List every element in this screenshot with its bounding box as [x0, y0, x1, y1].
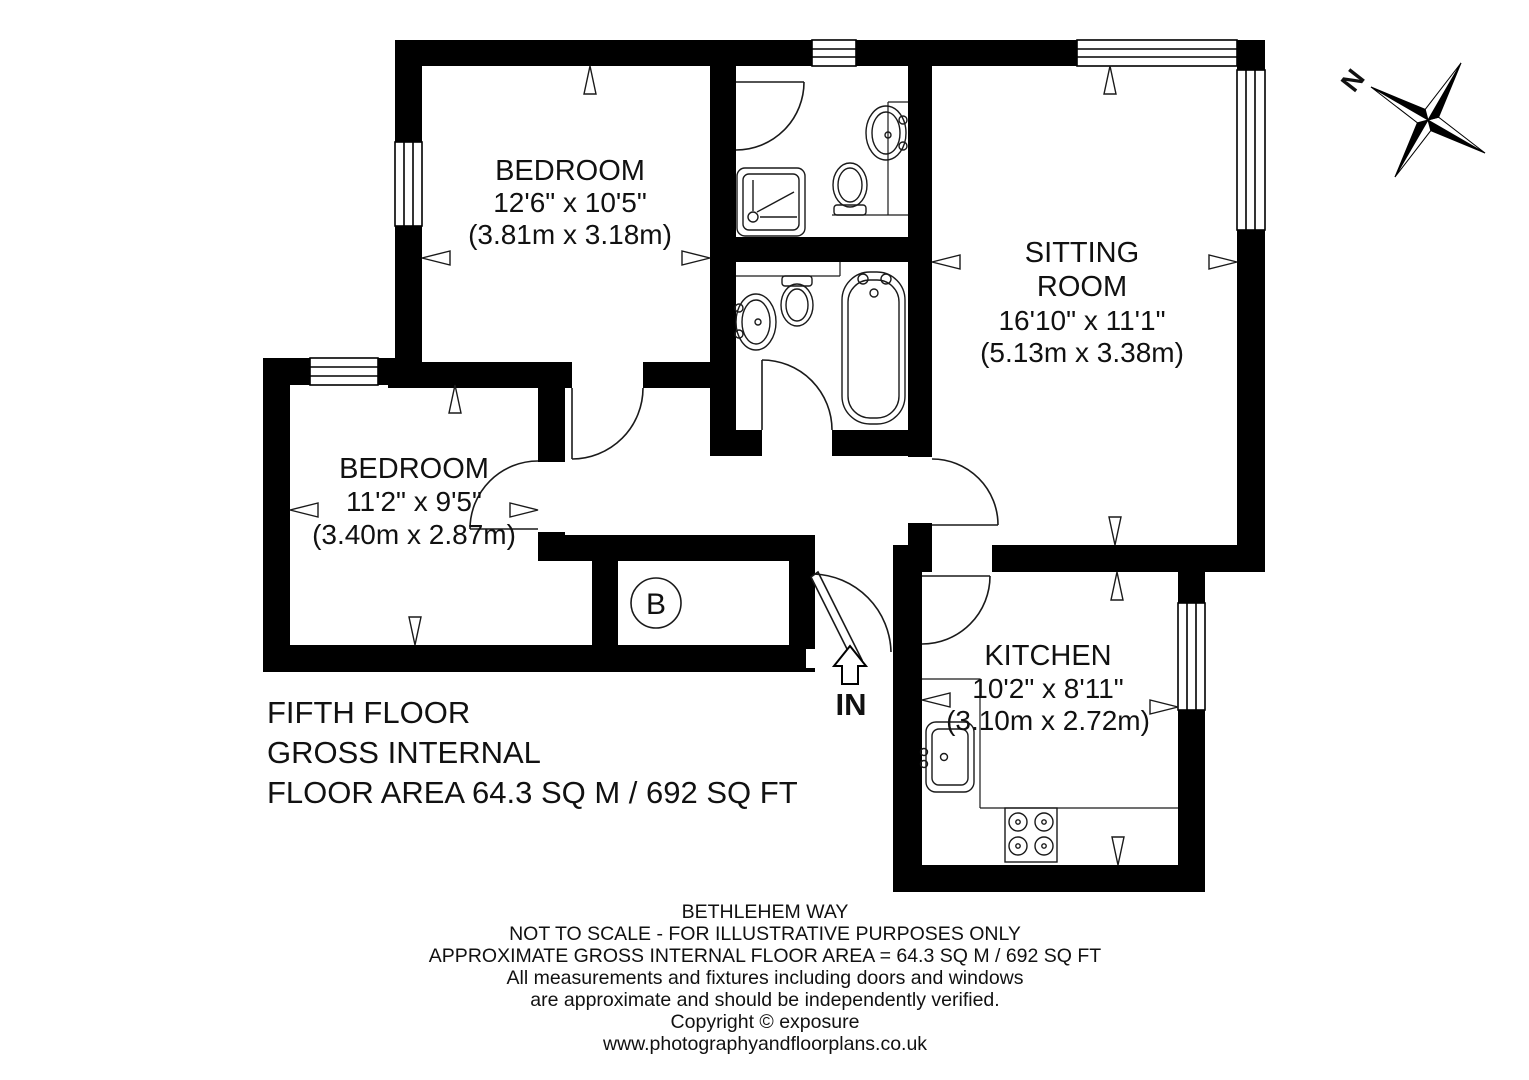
entrance-arrow	[834, 646, 866, 684]
window-sitting-top	[1077, 40, 1237, 66]
sitting-room-dims-ft: 16'10" x 11'1"	[998, 305, 1165, 336]
door-shower-room	[736, 82, 804, 150]
basin-shower-room	[832, 102, 908, 215]
sitting-room-dims-m: (5.13m x 3.38m)	[980, 337, 1184, 368]
bedroom1-dims-ft: 12'6" x 10'5"	[493, 187, 647, 218]
window-kitchen-right	[1178, 603, 1205, 710]
door-kitchen	[922, 576, 990, 644]
window-bedroom1-left	[395, 142, 422, 226]
footer-line-4: All measurements and fixtures including …	[506, 967, 1023, 989]
footer-line-2: NOT TO SCALE - FOR ILLUSTRATIVE PURPOSES…	[509, 923, 1021, 945]
title-block: FIFTH FLOOR GROSS INTERNAL FLOOR AREA 64…	[267, 695, 798, 810]
toilet-bathroom	[781, 276, 813, 326]
shower-tray	[737, 168, 805, 236]
window-shower-top	[812, 40, 856, 66]
basin-bathroom	[735, 262, 840, 350]
footer-line-7: www.photographyandfloorplans.co.uk	[602, 1033, 927, 1055]
bedroom1-name: BEDROOM	[495, 155, 645, 187]
footer-line-5: are approximate and should be independen…	[530, 989, 999, 1011]
entrance-in-label: IN	[836, 687, 867, 722]
room-label-sitting-room: SITTING ROOM 16'10" x 11'1" (5.13m x 3.3…	[980, 237, 1184, 368]
bedroom1-dims-m: (3.81m x 3.18m)	[468, 219, 672, 250]
door-sitting-room	[932, 459, 998, 525]
door-bedroom1	[572, 388, 643, 459]
kitchen-dims-ft: 10'2" x 8'11"	[972, 673, 1123, 704]
bathtub	[842, 272, 905, 424]
fixtures	[735, 102, 1178, 862]
kitchen-name: KITCHEN	[984, 640, 1111, 672]
floorplan-page: BEDROOM 12'6" x 10'5" (3.81m x 3.18m) SI…	[0, 0, 1529, 1080]
sitting-room-name-1: SITTING	[1025, 237, 1139, 269]
footer-line-3: APPROXIMATE GROSS INTERNAL FLOOR AREA = …	[429, 945, 1101, 967]
title-line-3: FLOOR AREA 64.3 SQ M / 692 SQ FT	[267, 775, 798, 810]
footer-line-1: BETHLEHEM WAY	[682, 901, 849, 923]
title-line-2: GROSS INTERNAL	[267, 735, 541, 770]
boiler-cupboard-label: B	[646, 588, 666, 621]
compass-north-label: N	[1335, 64, 1371, 98]
room-label-bedroom2: BEDROOM 11'2" x 9'5" (3.40m x 2.87m)	[312, 453, 516, 550]
window-bedroom2-top	[310, 358, 378, 385]
room-label-bedroom1: BEDROOM 12'6" x 10'5" (3.81m x 3.18m)	[468, 155, 672, 250]
sitting-room-name-2: ROOM	[1037, 271, 1127, 303]
footer-line-6: Copyright © exposure	[671, 1011, 860, 1033]
compass-rose	[1371, 63, 1485, 177]
toilet-shower-room	[833, 163, 867, 215]
bedroom2-name: BEDROOM	[339, 453, 489, 485]
bedroom2-dims-ft: 11'2" x 9'5"	[346, 486, 482, 517]
kitchen-hob	[1005, 808, 1057, 862]
room-label-kitchen: KITCHEN 10'2" x 8'11" (3.10m x 2.72m)	[946, 640, 1150, 736]
title-line-1: FIFTH FLOOR	[267, 695, 470, 730]
kitchen-dims-m: (3.10m x 2.72m)	[946, 705, 1150, 736]
bedroom2-dims-m: (3.40m x 2.87m)	[312, 519, 516, 550]
floorplan-drawing: BEDROOM 12'6" x 10'5" (3.81m x 3.18m) SI…	[0, 0, 1529, 1080]
door-bathroom	[762, 360, 832, 430]
footer-disclaimer: BETHLEHEM WAY NOT TO SCALE - FOR ILLUSTR…	[429, 901, 1101, 1055]
window-sitting-right	[1237, 70, 1265, 230]
